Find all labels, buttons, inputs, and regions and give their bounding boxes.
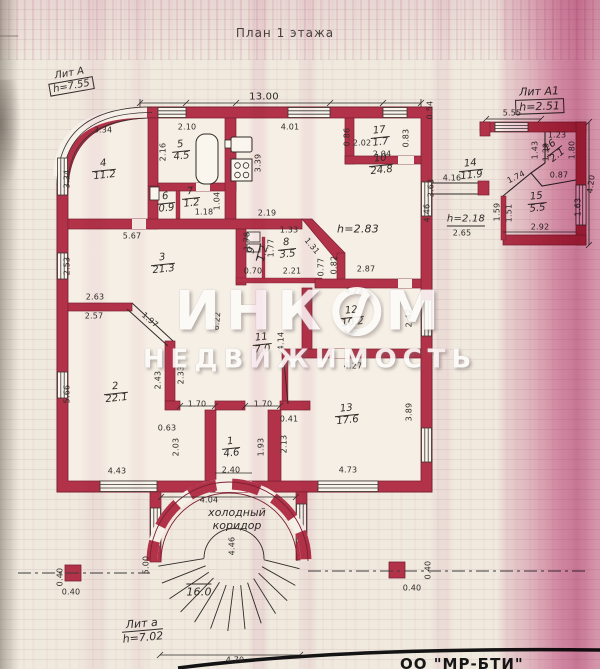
axis-lines bbox=[18, 571, 586, 573]
bathtub-icon bbox=[196, 134, 218, 184]
stove-icon bbox=[231, 159, 252, 181]
bti-stamp-text: ОО "МР-БТИ" bbox=[400, 655, 524, 669]
boiler-icon bbox=[150, 187, 159, 200]
cold-corridor-label: холодный коридор bbox=[208, 507, 266, 532]
spiral-staircase bbox=[158, 529, 299, 631]
basin-icon bbox=[247, 244, 260, 252]
sink-icon bbox=[231, 137, 252, 152]
wc-icon bbox=[247, 232, 260, 242]
annex-walls bbox=[432, 122, 586, 245]
floor-plan-drawing bbox=[0, 0, 600, 669]
columns bbox=[65, 562, 405, 581]
floor-plan-page: 14.6222.1321.3411.254.560.971.283.591.21… bbox=[0, 0, 600, 669]
